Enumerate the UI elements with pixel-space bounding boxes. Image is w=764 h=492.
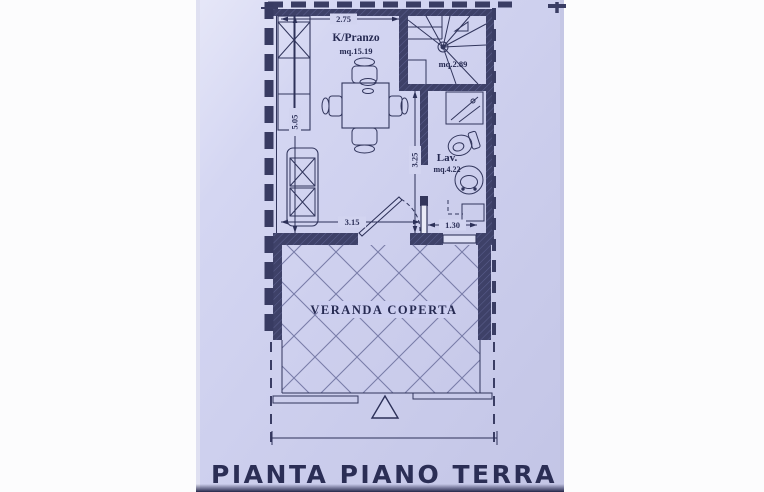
wall-bottom-left [273, 233, 358, 245]
wall-right [486, 9, 494, 245]
room-label-bathroom: Lav. [437, 152, 458, 164]
paper-left-edge [196, 0, 200, 492]
veranda-pillar-right [478, 245, 491, 340]
room-label-veranda: VERANDA COPERTA [310, 303, 457, 317]
wall-stair-bottom [399, 84, 486, 91]
wall-bottom-right [476, 233, 494, 245]
area-label-kitchen: mq.15.19 [339, 46, 372, 56]
door-jamb [421, 205, 427, 235]
floor-plan-scan: VERANDA COPERTA [0, 0, 764, 492]
svg-text:2.75: 2.75 [336, 14, 351, 24]
svg-text:1.30: 1.30 [445, 220, 460, 230]
veranda-pillar-left [273, 245, 282, 340]
room-label-kitchen: K/Pranzo [332, 32, 380, 44]
veranda-bathroom-threshold [443, 235, 476, 243]
paper-right-edge [560, 0, 564, 492]
wall-top [273, 9, 494, 16]
wall-bottom-middle [410, 233, 443, 245]
area-label-bathroom: mq.4.22 [433, 165, 460, 174]
svg-text:3.15: 3.15 [345, 217, 360, 227]
veranda-room: VERANDA COPERTA [273, 245, 492, 418]
svg-text:5.05: 5.05 [290, 115, 300, 130]
area-label-stairwell: mq.2.89 [439, 59, 468, 69]
wall-kitchen-bath-divider [420, 91, 428, 165]
veranda-tile-floor [282, 245, 480, 393]
plan-title: PIANTA PIANO TERRA [211, 460, 557, 489]
wall-stair-left [399, 9, 408, 89]
svg-text:3.25: 3.25 [410, 153, 420, 168]
